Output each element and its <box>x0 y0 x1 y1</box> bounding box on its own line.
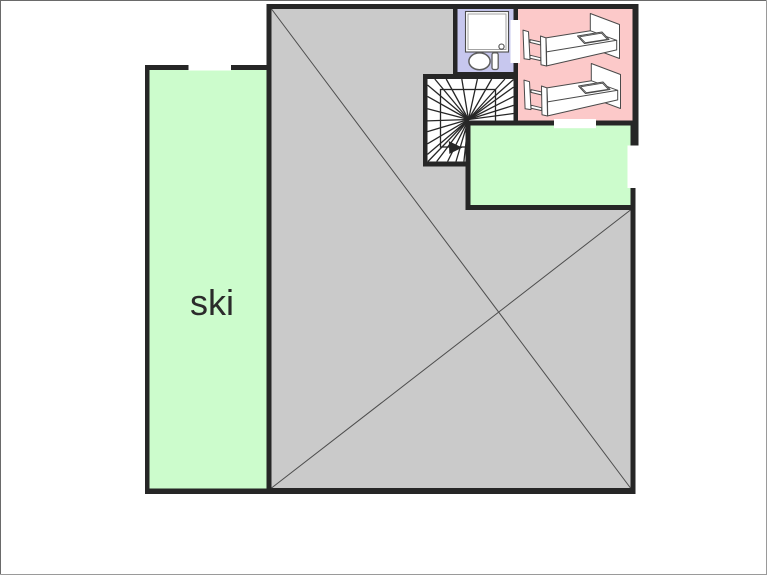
svg-text:ski: ski <box>190 282 234 323</box>
